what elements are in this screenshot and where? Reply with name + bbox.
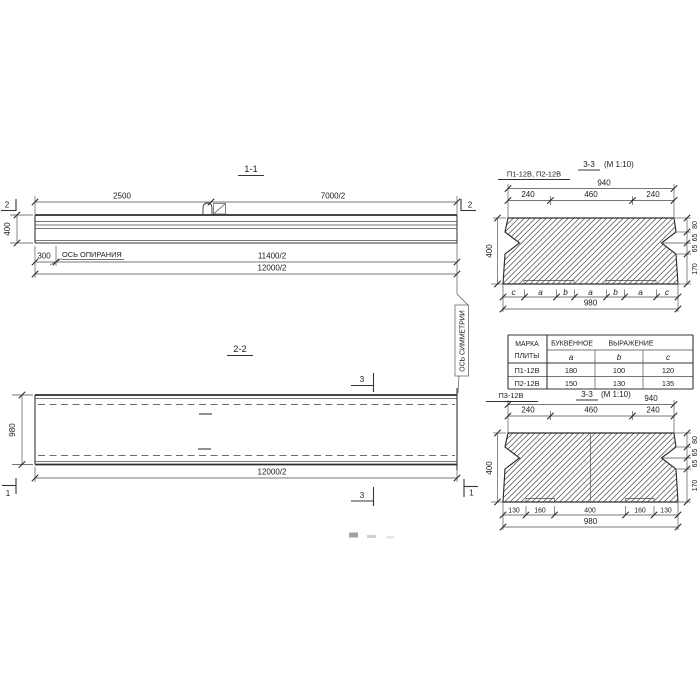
letter-a2: a [588, 288, 593, 297]
right-dim-65b-bottom: 65 [692, 460, 699, 468]
right-dim-80-top: 80 [692, 221, 699, 229]
cut-marker-2-right: 2 [461, 199, 476, 211]
dim-980-left: 980 [8, 392, 33, 468]
row-p2-a: 150 [565, 379, 577, 388]
plate-dimension-table: МАРКА ПЛИТЫ БУКВЕННОЕ ВЫРАЖЕНИЕ a b c П1… [508, 335, 693, 389]
cut-1-right-label: 1 [469, 489, 474, 498]
section-3-3-top-title: 3-3 [583, 160, 595, 169]
support-axis-callout: ОСЬ ОПИРАНИЯ 300 [37, 246, 124, 266]
cut-3-bottom-label: 3 [360, 491, 365, 500]
dim-7000-label: 7000/2 [321, 192, 346, 201]
letter-a1: a [538, 288, 543, 297]
table-row-p2: П2-12В 150 130 135 [514, 379, 674, 388]
dim-400-top-section-label: 400 [485, 244, 494, 258]
right-dim-170-bottom: 170 [692, 480, 699, 492]
dim-980-top-section: 980 [500, 299, 681, 313]
bottom-dim-400: 400 [584, 508, 596, 515]
dim-980-bottom-section: 980 [500, 517, 681, 530]
drawing-sheet: 1-1 2500 7000/2 2 2 [0, 0, 700, 700]
dim-980-top-section-label: 980 [584, 299, 598, 308]
dim-chain-top: 2500 7000/2 [32, 192, 460, 215]
bottom-dim-130a: 130 [508, 508, 520, 515]
letter-b2: b [613, 288, 618, 297]
dim-400-top-section: 400 [485, 215, 506, 287]
dim-12000-bottom-label: 12000/2 [258, 468, 287, 477]
row-p1-b: 100 [613, 366, 625, 375]
row-p2-mark: П2-12В [514, 379, 539, 388]
support-axis-label: ОСЬ ОПИРАНИЯ [62, 250, 122, 259]
blueprint-canvas: 1-1 2500 7000/2 2 2 [0, 0, 700, 700]
scan-artifact [349, 533, 394, 539]
right-dim-80-bottom: 80 [692, 436, 699, 444]
cut-1-left-label: 1 [6, 489, 11, 498]
dim-400-bottom-section-label: 400 [485, 461, 494, 475]
table-header-marka: МАРКА [515, 341, 539, 348]
right-dim-65a-top: 65 [692, 234, 699, 242]
section-2-2-plan: 2-2 980 [2, 344, 478, 506]
table-col-c: c [666, 353, 670, 362]
dim-240-460-240-top: 240 460 240 [505, 184, 677, 218]
section-3-3-bottom-title: 3-3 [581, 390, 593, 399]
row-p1-mark: П1-12В [514, 366, 539, 375]
bottom-dim-130b: 130 [660, 508, 672, 515]
dim-980-bottom-section-label: 980 [584, 517, 598, 526]
letter-c1: c [511, 288, 515, 297]
section-3-3-bottom-scale: (М 1:10) [601, 390, 631, 399]
dim-460-bottom-label: 460 [584, 406, 598, 415]
table-header-vyrazhenie: ВЫРАЖЕНИЕ [609, 341, 654, 348]
right-dim-170-top: 170 [692, 263, 699, 275]
table-header-plity: ПЛИТЫ [515, 353, 540, 360]
letter-c2: c [665, 288, 669, 297]
row-p1-a: 180 [565, 366, 577, 375]
dim-940-top-label: 940 [597, 179, 611, 188]
table-header-bukvennoe: БУКВЕННОЕ [551, 341, 593, 348]
cut-marker-3-top: 3 [351, 373, 374, 392]
right-dim-65b-top: 65 [692, 245, 699, 253]
symmetry-axis-label: ОСЬ СИММЕТРИИ [460, 310, 467, 372]
mark-p1-p2-label: П1-12В, П2-12В [507, 170, 561, 179]
dim-980-label: 980 [8, 423, 17, 437]
cut-marker-1-right: 1 [464, 479, 478, 498]
section-1-1-title: 1-1 [244, 164, 257, 174]
dim-12000-bottom: 12000/2 [32, 467, 460, 482]
section-1-1-elevation: 1-1 2500 7000/2 2 2 [1, 164, 476, 278]
cut-marker-2-left: 2 [1, 199, 16, 211]
dim-240-460-240-bottom: 240 460 240 [505, 400, 677, 433]
cut-marker-1-left: 1 [2, 478, 16, 498]
bottom-dim-160a: 160 [534, 508, 546, 515]
slab-cross-section-p1p2 [503, 218, 678, 284]
row-p1-c: 120 [662, 366, 674, 375]
lifting-loop [203, 203, 226, 215]
section-3-3-bottom: П3-12В 3-3 (М 1:10) 940 240 460 240 [485, 390, 699, 530]
section-2-2-title: 2-2 [233, 344, 246, 354]
row-p2-c: 135 [662, 379, 674, 388]
table-col-a: a [569, 353, 574, 362]
dim-240-right-bottom-label: 240 [646, 406, 660, 415]
table-col-b: b [617, 353, 622, 362]
letter-b1: b [563, 288, 568, 297]
cut-3-top-label: 3 [360, 375, 365, 384]
dim-240-left-bottom-label: 240 [521, 406, 535, 415]
cut-2-right-label: 2 [468, 201, 473, 210]
dim-400-label: 400 [3, 222, 12, 236]
plate-outline [35, 388, 457, 470]
dim-11400-label: 11400/2 [258, 252, 287, 261]
mark-p3-label: П3-12В [498, 391, 523, 400]
section-3-3-top: 3-3 (М 1:10) П1-12В, П2-12В 940 240 460 … [485, 160, 699, 312]
beam-outline [35, 215, 457, 243]
section-3-3-top-scale: (М 1:10) [604, 160, 634, 169]
letter-a3: a [638, 288, 643, 297]
bottom-dim-160b: 160 [634, 508, 646, 515]
symmetry-axis-callout: ОСЬ СИММЕТРИИ [455, 196, 469, 393]
cut-2-left-label: 2 [5, 201, 10, 210]
dim-2500-label: 2500 [113, 192, 131, 201]
row-p2-b: 130 [613, 379, 625, 388]
dim-460-label: 460 [584, 190, 598, 199]
dim-240-right-label: 240 [646, 190, 660, 199]
dim-12000-label: 12000/2 [258, 264, 287, 273]
dim-940-bottom-label: 940 [644, 394, 658, 403]
dim-400-left: 400 [3, 212, 33, 246]
cut-marker-3-bottom: 3 [351, 487, 374, 506]
dim-240-left-label: 240 [521, 190, 535, 199]
right-dim-65a-bottom: 65 [692, 449, 699, 457]
dim-400-bottom-section: 400 [485, 430, 506, 505]
table-row-p1: П1-12В 180 100 120 [514, 366, 674, 375]
dim-300-label: 300 [37, 252, 51, 261]
